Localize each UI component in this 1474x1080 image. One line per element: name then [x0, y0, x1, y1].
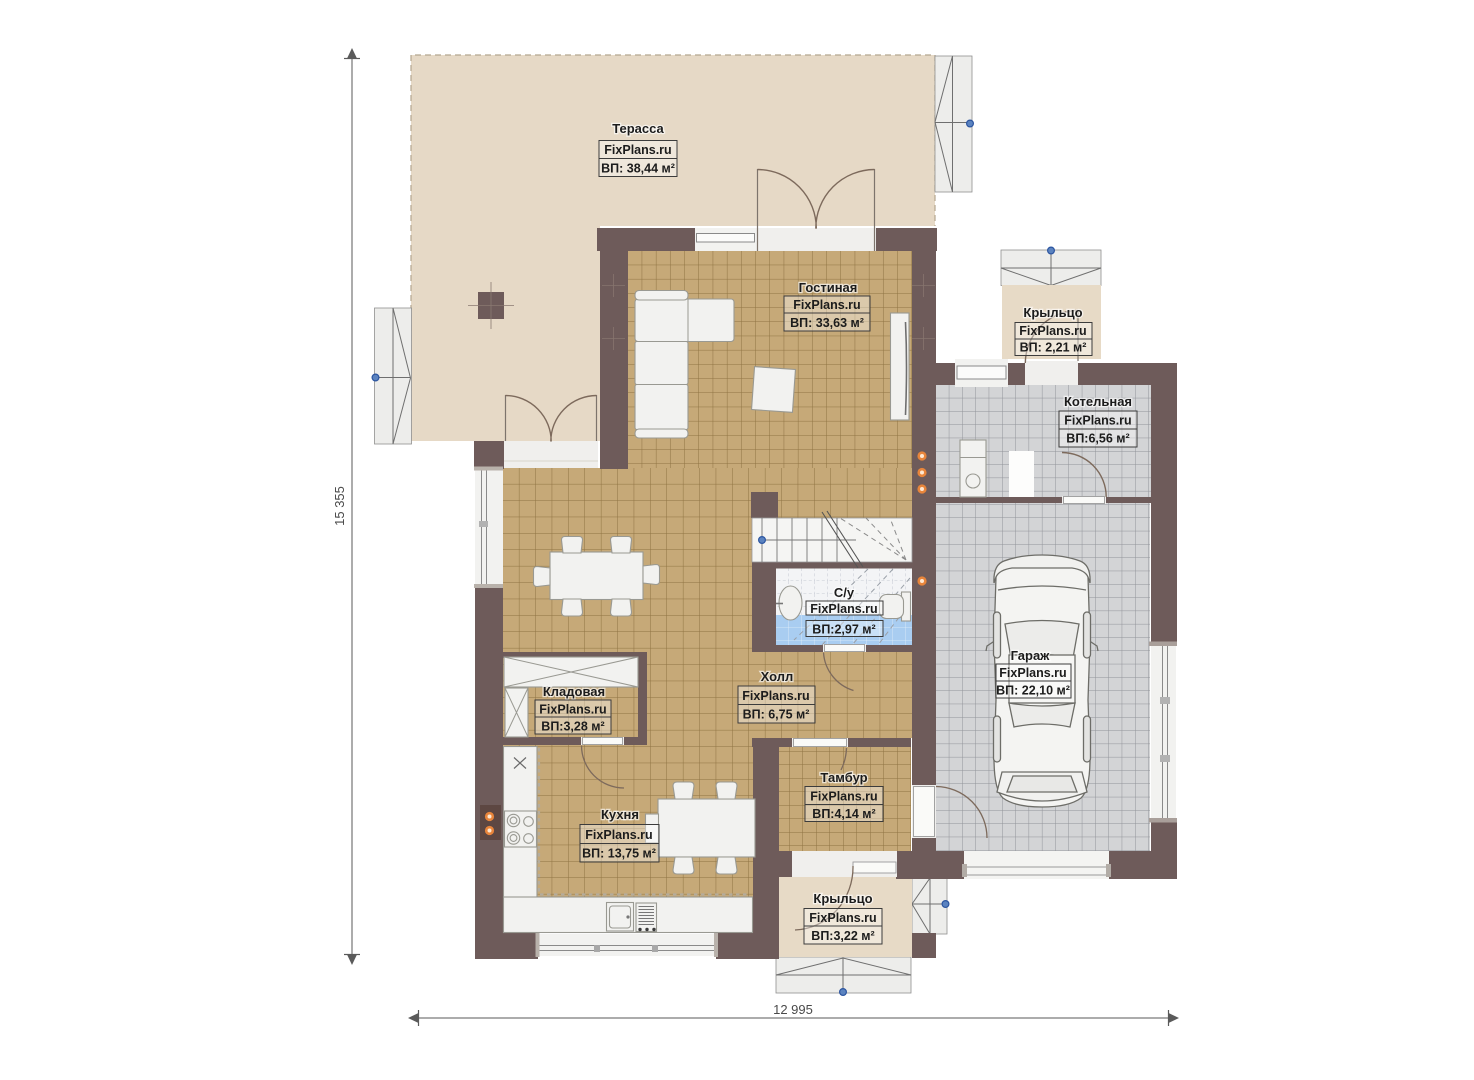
- svg-text:Крыльцо: Крыльцо: [813, 891, 872, 906]
- svg-text:Терасса: Терасса: [612, 121, 664, 136]
- svg-text:ВП: 2,21 м²: ВП: 2,21 м²: [1020, 341, 1087, 355]
- svg-text:FixPlans.ru: FixPlans.ru: [793, 298, 860, 312]
- svg-text:ВП: 38,44 м²: ВП: 38,44 м²: [601, 162, 675, 176]
- svg-text:ВП: 22,10 м²: ВП: 22,10 м²: [996, 684, 1070, 698]
- svg-text:ВП:3,22 м²: ВП:3,22 м²: [811, 929, 874, 943]
- svg-text:FixPlans.ru: FixPlans.ru: [809, 911, 876, 925]
- svg-text:FixPlans.ru: FixPlans.ru: [1019, 324, 1086, 338]
- svg-text:FixPlans.ru: FixPlans.ru: [810, 602, 877, 616]
- svg-text:FixPlans.ru: FixPlans.ru: [539, 703, 606, 717]
- svg-text:FixPlans.ru: FixPlans.ru: [810, 790, 877, 804]
- svg-text:FixPlans.ru: FixPlans.ru: [604, 143, 671, 157]
- svg-text:Холл: Холл: [761, 669, 794, 684]
- svg-text:ВП:3,28 м²: ВП:3,28 м²: [541, 720, 604, 734]
- svg-text:FixPlans.ru: FixPlans.ru: [585, 828, 652, 842]
- svg-text:12 995: 12 995: [773, 1002, 813, 1017]
- svg-text:ВП:6,56 м²: ВП:6,56 м²: [1066, 432, 1129, 446]
- svg-text:ВП:4,14 м²: ВП:4,14 м²: [812, 807, 875, 821]
- svg-text:ВП: 33,63 м²: ВП: 33,63 м²: [790, 316, 864, 330]
- svg-text:15 355: 15 355: [332, 486, 347, 526]
- svg-text:FixPlans.ru: FixPlans.ru: [1064, 414, 1131, 428]
- svg-text:ВП:2,97 м²: ВП:2,97 м²: [812, 623, 875, 637]
- svg-text:Котельная: Котельная: [1064, 394, 1132, 409]
- svg-text:Кладовая: Кладовая: [543, 684, 605, 699]
- svg-text:FixPlans.ru: FixPlans.ru: [742, 689, 809, 703]
- svg-text:Гараж: Гараж: [1011, 648, 1051, 663]
- svg-text:Кухня: Кухня: [601, 807, 639, 822]
- svg-text:Тамбур: Тамбур: [820, 770, 867, 785]
- svg-text:Гостиная: Гостиная: [799, 280, 858, 295]
- svg-text:ВП: 6,75 м²: ВП: 6,75 м²: [743, 708, 810, 722]
- svg-text:Крыльцо: Крыльцо: [1023, 305, 1082, 320]
- svg-text:С/у: С/у: [834, 585, 855, 600]
- svg-text:ВП: 13,75 м²: ВП: 13,75 м²: [582, 847, 656, 861]
- svg-text:FixPlans.ru: FixPlans.ru: [999, 666, 1066, 680]
